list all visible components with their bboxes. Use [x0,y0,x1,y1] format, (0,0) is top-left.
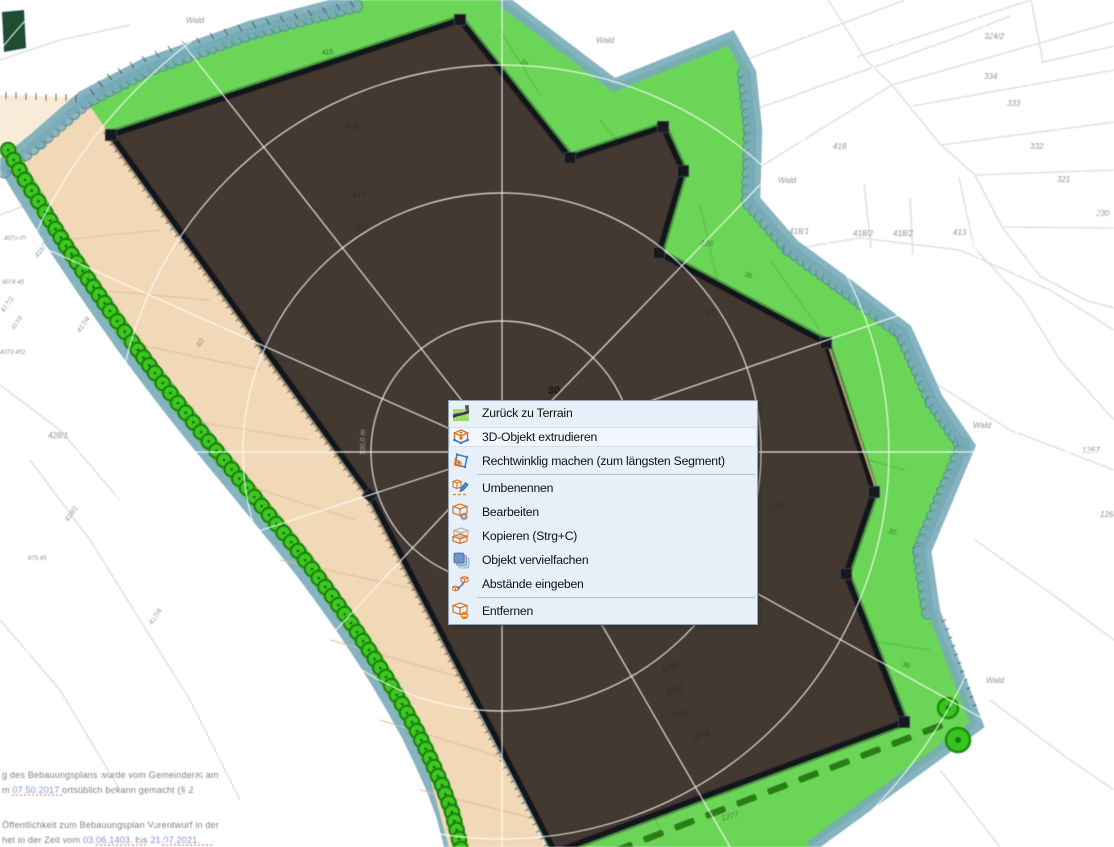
svg-text:30: 30 [548,385,560,397]
svg-text:418: 418 [345,122,359,131]
svg-text:332: 332 [1030,142,1044,151]
svg-text:418: 418 [833,142,847,151]
svg-text:Öffentlichkeit zum Bebauungspl: Öffentlichkeit zum Bebauungsplan Vorentw… [2,820,219,830]
svg-text:1268: 1268 [1100,510,1114,519]
svg-text:Wald: Wald [186,16,205,25]
svg-text:321: 321 [1057,175,1070,184]
svg-text:Wald: Wald [596,36,615,45]
svg-text:875.45: 875.45 [28,556,47,562]
svg-text:418/2: 418/2 [853,229,874,238]
svg-text:417: 417 [352,191,366,200]
svg-text:415: 415 [321,49,333,57]
svg-text:428/1: 428/1 [48,431,68,440]
svg-text:413: 413 [953,228,967,237]
svg-text:g des Bebauungsplans wurde vom: g des Bebauungsplans wurde vom Gemeinder… [2,770,219,780]
svg-text:324/2: 324/2 [984,32,1005,41]
svg-text:9074-45: 9074-45 [2,280,25,286]
svg-text:4073-452: 4073-452 [0,350,26,356]
svg-text:333: 333 [1007,99,1021,108]
svg-text:418/2: 418/2 [893,229,914,238]
svg-text:het in der Zeit vom 03.06.1403: het in der Zeit vom 03.06.1403. bis 21.0… [2,835,200,845]
svg-text:1267: 1267 [1082,446,1100,455]
svg-text:100,0 m: 100,0 m [360,430,367,455]
svg-text:Wald: Wald [986,676,1005,685]
svg-text:334: 334 [984,72,998,81]
svg-text:Wald: Wald [973,421,992,430]
svg-text:m 07.50.2017 ortsüblich bekann: m 07.50.2017 ortsüblich bekann gemacht (… [2,785,194,795]
